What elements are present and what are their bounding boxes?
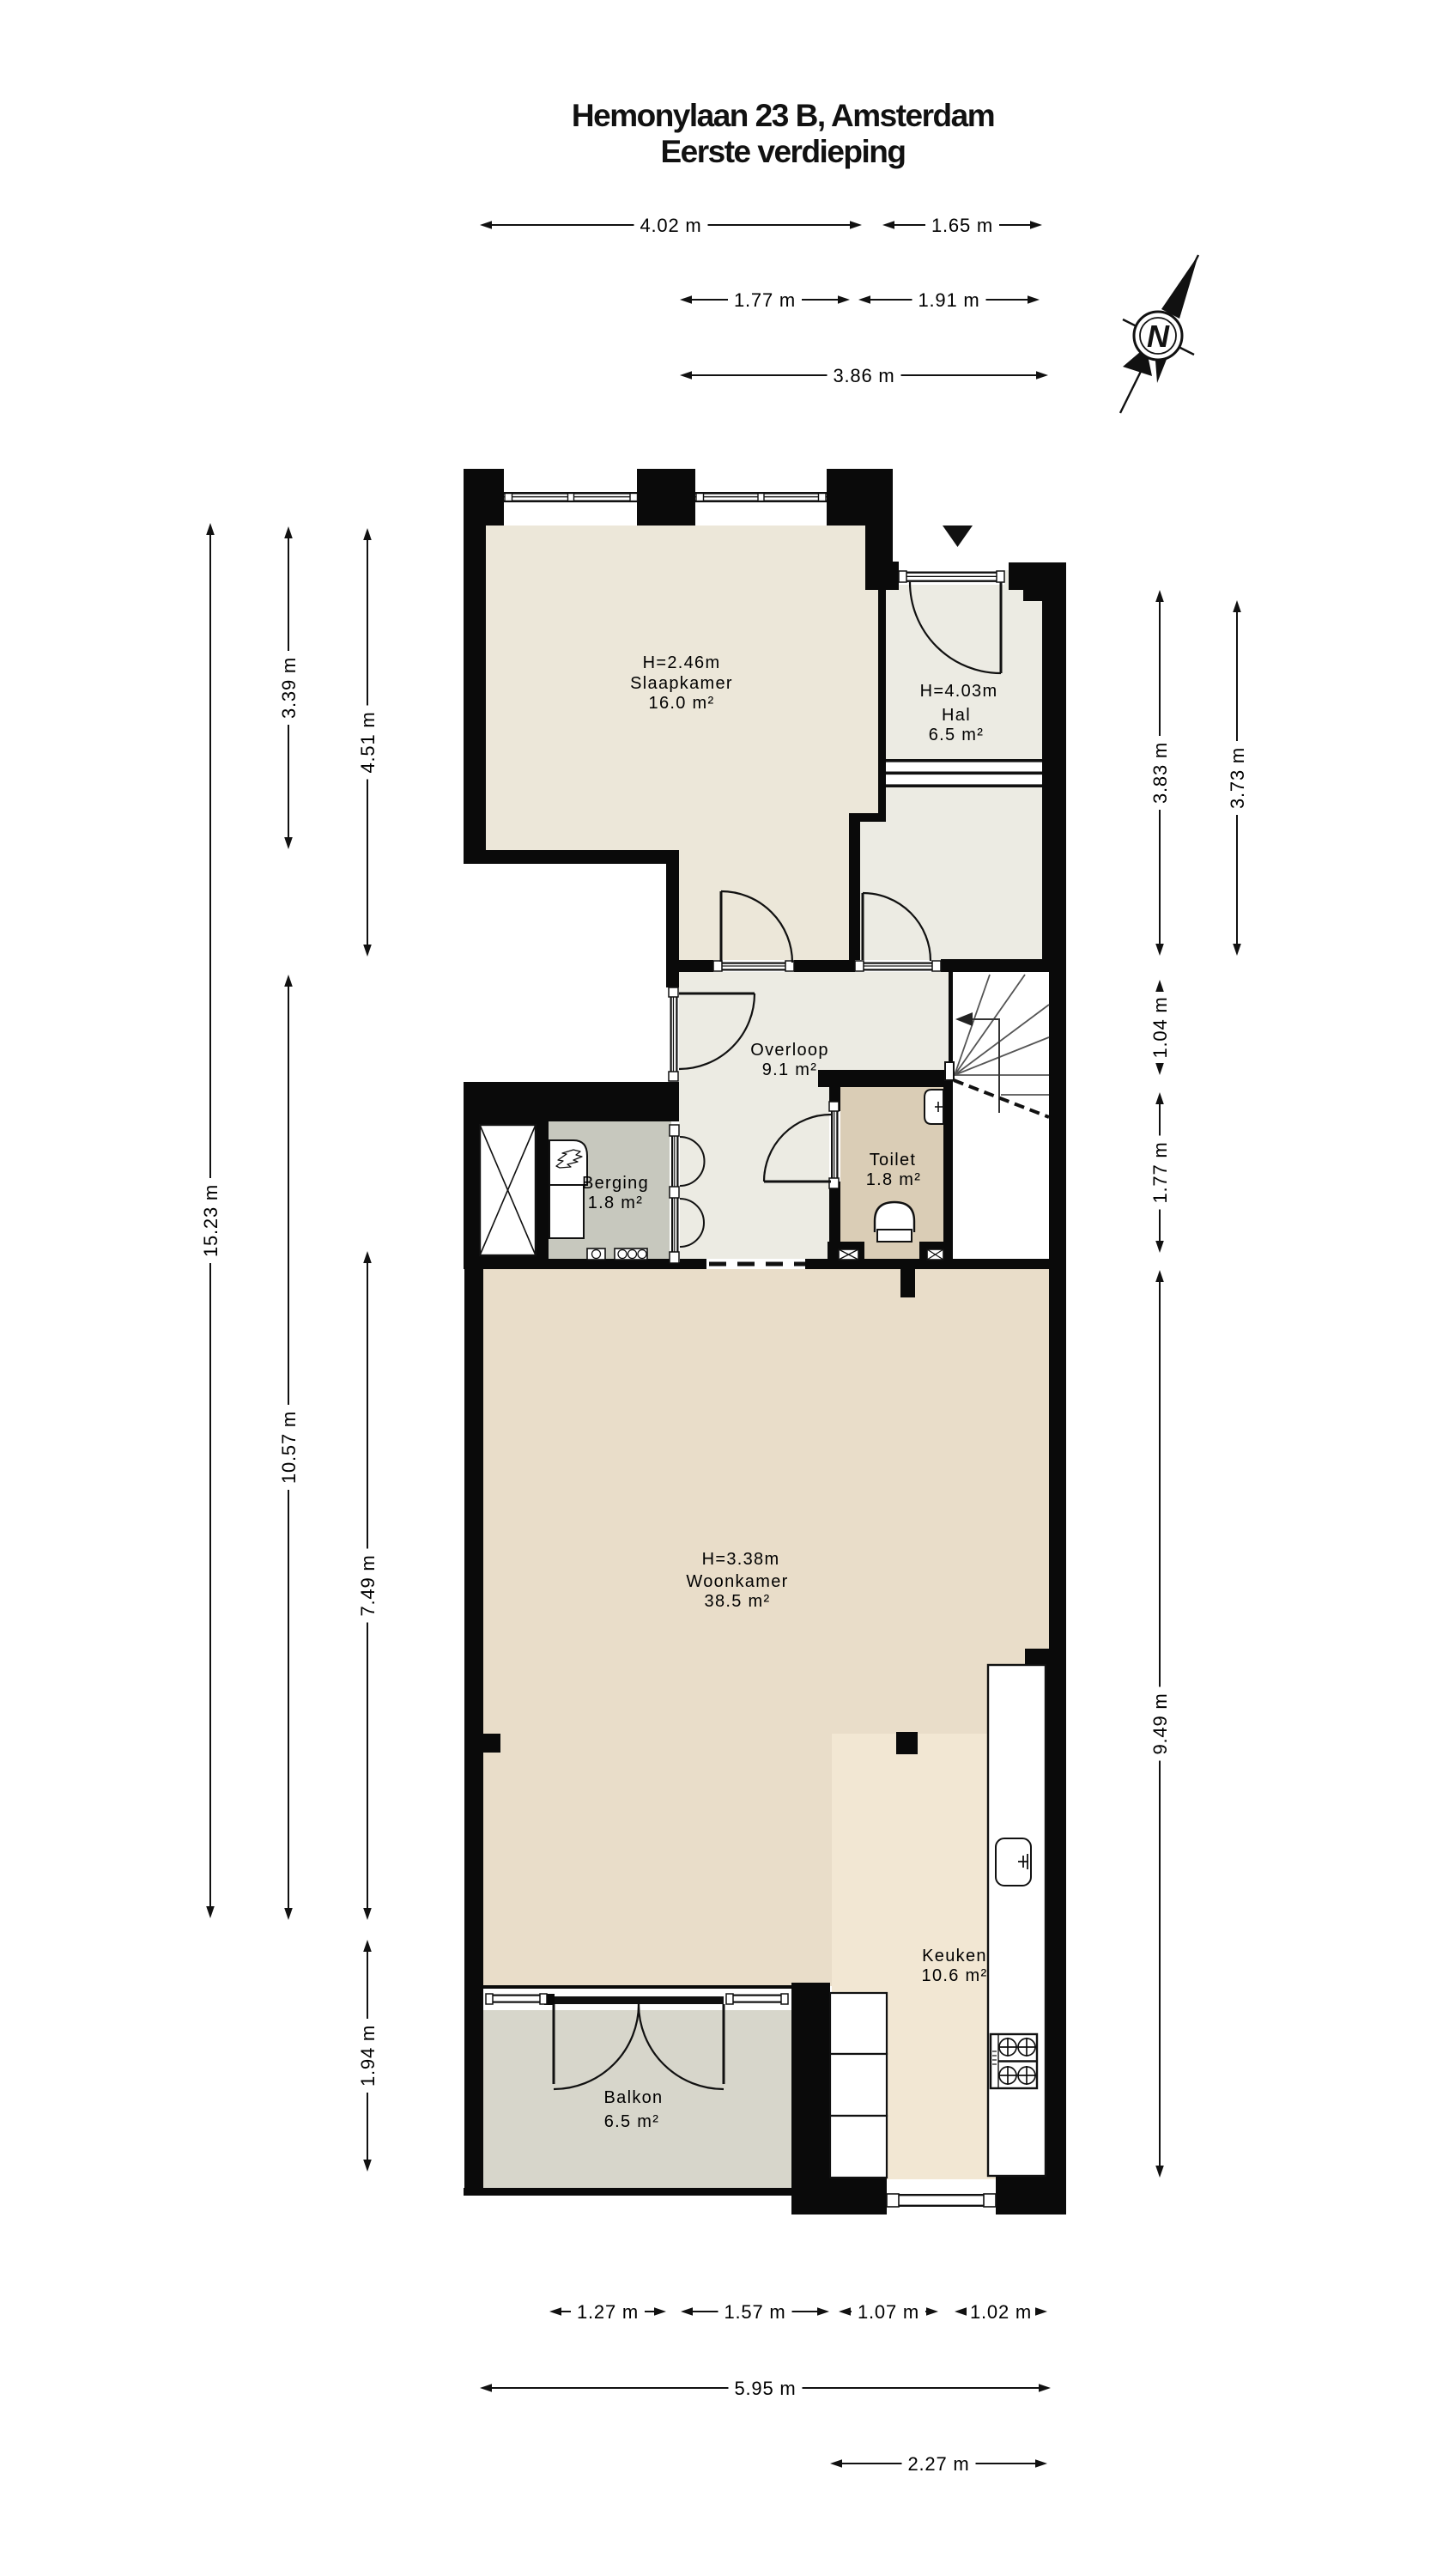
svg-text:1.27 m: 1.27 m [577, 2301, 639, 2323]
svg-text:1.07 m: 1.07 m [858, 2301, 919, 2323]
svg-text:1.94 m: 1.94 m [357, 2025, 379, 2087]
svg-text:7.49 m: 7.49 m [357, 1554, 379, 1616]
svg-text:1.57 m: 1.57 m [724, 2301, 785, 2323]
svg-text:Woonkamer: Woonkamer [686, 1572, 788, 1591]
svg-text:Balkon: Balkon [604, 2088, 664, 2107]
svg-text:6.5 m²: 6.5 m² [929, 726, 984, 744]
svg-text:3.86 m: 3.86 m [833, 365, 894, 386]
svg-text:10.57 m: 10.57 m [278, 1411, 300, 1484]
svg-text:H=2.46m: H=2.46m [643, 653, 721, 672]
svg-text:Hemonylaan 23 B, Amsterdam: Hemonylaan 23 B, Amsterdam [572, 98, 994, 133]
svg-text:H=4.03m: H=4.03m [920, 682, 998, 701]
svg-text:10.6 m²: 10.6 m² [922, 1966, 988, 1985]
svg-text:1.77 m: 1.77 m [734, 289, 796, 311]
svg-text:Toilet: Toilet [870, 1151, 917, 1170]
svg-text:6.5 m²: 6.5 m² [604, 2112, 659, 2131]
svg-text:Berging: Berging [582, 1174, 649, 1193]
svg-text:2.27 m: 2.27 m [907, 2453, 969, 2475]
svg-text:3.39 m: 3.39 m [278, 657, 300, 719]
svg-text:Overloop: Overloop [750, 1041, 829, 1060]
svg-text:Slaapkamer: Slaapkamer [630, 674, 733, 693]
svg-text:16.0 m²: 16.0 m² [649, 694, 715, 713]
svg-text:15.23 m: 15.23 m [200, 1184, 221, 1257]
svg-text:1.8 m²: 1.8 m² [588, 1194, 643, 1212]
svg-text:1.8 m²: 1.8 m² [866, 1170, 921, 1189]
svg-text:Keuken: Keuken [922, 1947, 987, 1965]
svg-text:1.65 m: 1.65 m [931, 215, 993, 236]
svg-text:3.83 m: 3.83 m [1149, 742, 1171, 804]
svg-text:5.95 m: 5.95 m [734, 2378, 796, 2399]
svg-text:N: N [1147, 319, 1170, 354]
svg-text:9.1 m²: 9.1 m² [762, 1060, 817, 1079]
svg-text:38.5 m²: 38.5 m² [705, 1592, 771, 1611]
svg-text:1.77 m: 1.77 m [1149, 1141, 1171, 1203]
svg-text:H=3.38m: H=3.38m [702, 1550, 780, 1569]
svg-text:Hal: Hal [942, 706, 971, 725]
svg-text:4.51 m: 4.51 m [357, 711, 379, 773]
svg-text:1.02 m: 1.02 m [970, 2301, 1032, 2323]
svg-text:9.49 m: 9.49 m [1149, 1692, 1171, 1754]
svg-text:1.04 m: 1.04 m [1149, 996, 1171, 1058]
svg-text:Eerste verdieping: Eerste verdieping [660, 134, 905, 169]
svg-text:4.02 m: 4.02 m [640, 215, 701, 236]
svg-text:1.91 m: 1.91 m [918, 289, 979, 311]
svg-text:3.73 m: 3.73 m [1227, 747, 1248, 809]
